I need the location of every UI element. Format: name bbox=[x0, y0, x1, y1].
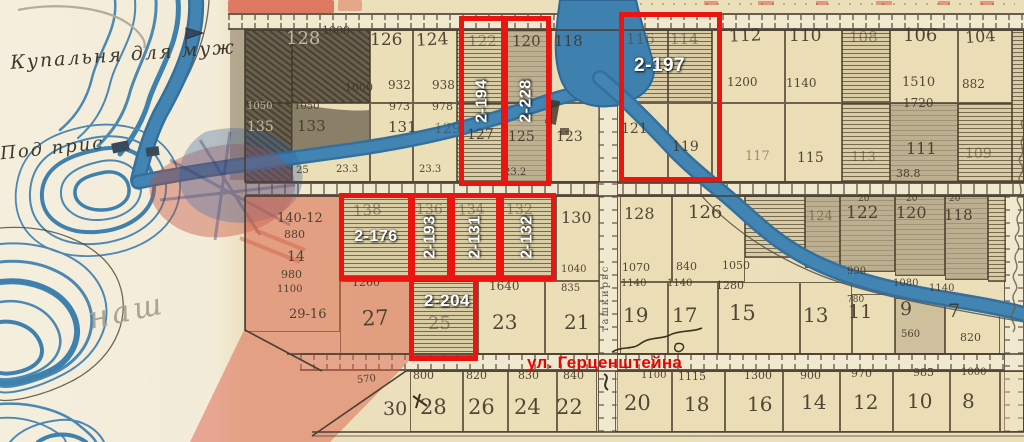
map-canvas: 1000128126124122120118100093293810501050… bbox=[0, 0, 1024, 442]
highlight-box-label: 2-204 bbox=[424, 291, 470, 311]
highlight-box-2-228: 2-228 bbox=[503, 16, 551, 186]
highlight-box-2-132: 2-132 bbox=[499, 193, 556, 281]
highlight-box-2-131: 2-131 bbox=[450, 193, 501, 281]
highlight-box-2-176: 2-176 bbox=[339, 193, 413, 281]
highlight-box-label: 2-228 bbox=[518, 79, 536, 122]
street-label-gertsenshteina: ул. Герценштейна bbox=[527, 353, 682, 373]
highlight-box-label: 2-131 bbox=[467, 215, 485, 258]
highlight-box-2-194: 2-194 bbox=[459, 16, 506, 186]
highlight-box-label: 2-193 bbox=[422, 215, 440, 258]
highlight-box-label: 2-132 bbox=[518, 215, 536, 258]
highlight-box-label: 2-176 bbox=[354, 228, 397, 246]
highlight-box-label: 2-197 bbox=[634, 55, 685, 77]
annotation-boxes: 2-1942-2282-1972-1762-1932-1312-1322-204 bbox=[0, 0, 1024, 442]
highlight-box-2-193: 2-193 bbox=[410, 193, 452, 281]
highlight-box-2-204: 2-204 bbox=[409, 276, 478, 361]
highlight-box-2-197: 2-197 bbox=[619, 12, 722, 182]
highlight-box-label: 2-194 bbox=[474, 79, 492, 122]
